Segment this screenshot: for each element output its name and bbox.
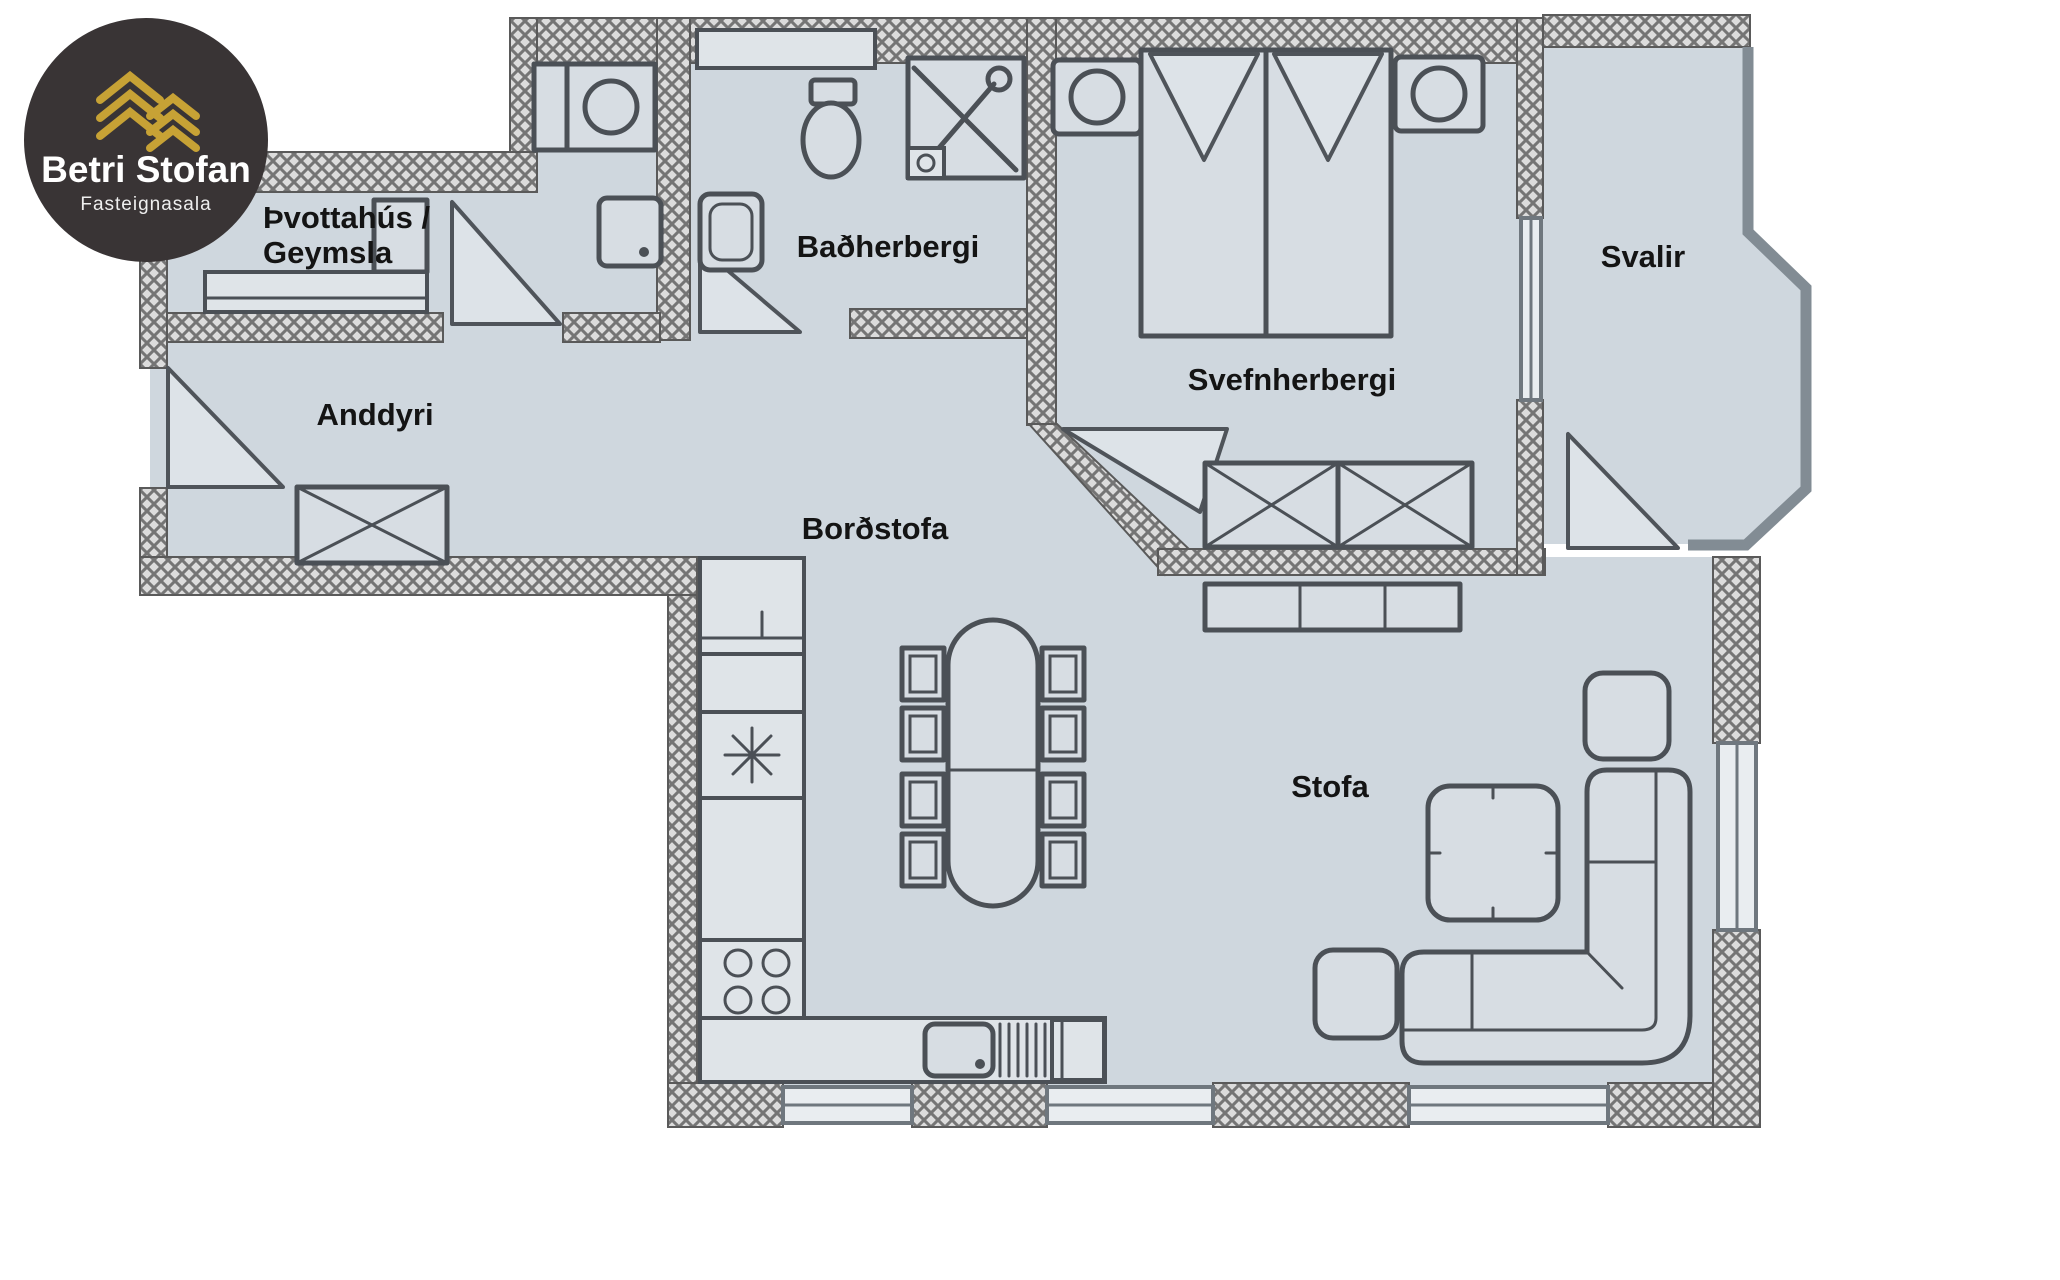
fridge-icon (700, 558, 804, 654)
room-label-living: Stofa (1291, 769, 1369, 804)
brand-logo: Betri Stofan Fasteignasala (24, 18, 268, 262)
wall-segment (167, 313, 443, 342)
freezer-star-icon (725, 728, 779, 782)
wall-segment (668, 1083, 783, 1127)
laundry-sink-icon (599, 198, 661, 266)
kitchen-sink-icon (925, 1024, 993, 1076)
dining-table-icon (948, 620, 1038, 906)
laundry-sink-drain-icon (639, 247, 649, 257)
wall-segment (1158, 549, 1545, 575)
brand-tagline: Fasteignasala (80, 194, 211, 215)
wall-segment (668, 595, 697, 1127)
room-label-bedroom: Svefnherbergi (1188, 362, 1396, 397)
kitchen-sink-drain-icon (975, 1059, 985, 1069)
wall-segment (1213, 1083, 1409, 1127)
room-label-laundry-line1: Þvottahús / (263, 200, 430, 235)
room-label-entry: Anddyri (316, 397, 433, 432)
bathroom-counter-icon (697, 30, 875, 68)
room-label-dining: Borðstofa (802, 511, 949, 546)
wall-segment (657, 18, 690, 340)
logo-circle (24, 18, 268, 262)
wall-segment (1713, 557, 1760, 743)
room-label-bathroom: Baðherbergi (797, 229, 980, 264)
brand-name: Betri Stofan (41, 149, 251, 190)
ottoman-icon (1585, 673, 1669, 759)
wall-segment (563, 313, 660, 342)
wall-segment (1713, 930, 1760, 1127)
coffee-table-icon (1428, 786, 1558, 920)
floor-plan-svg: Þvottahús / Geymsla Baðherbergi Svefnher… (0, 0, 2060, 1280)
dishwasher-icon (1052, 1020, 1104, 1080)
kitchen-counter-icon (700, 654, 804, 712)
floor-plan-page: Þvottahús / Geymsla Baðherbergi Svefnher… (0, 0, 2060, 1280)
washing-machine-icon (567, 64, 655, 150)
wall-segment (1543, 15, 1750, 47)
sideboard-icon (1205, 584, 1460, 630)
kitchen-counter-icon (700, 798, 804, 940)
room-label-balcony: Svalir (1601, 239, 1685, 274)
wall-segment (850, 309, 1030, 338)
wall-segment (1517, 18, 1543, 218)
toilet-tank-icon (811, 80, 855, 104)
wall-segment (912, 1083, 1047, 1127)
shower-fixture-icon (908, 148, 944, 178)
laundry-bench-icon (205, 272, 427, 312)
room-label-laundry-line2: Geymsla (263, 235, 393, 270)
wall-segment (1517, 400, 1543, 575)
toilet-bowl-icon (803, 103, 859, 177)
laundry-cabinet-icon (534, 64, 567, 150)
ottoman-icon (1315, 950, 1397, 1038)
